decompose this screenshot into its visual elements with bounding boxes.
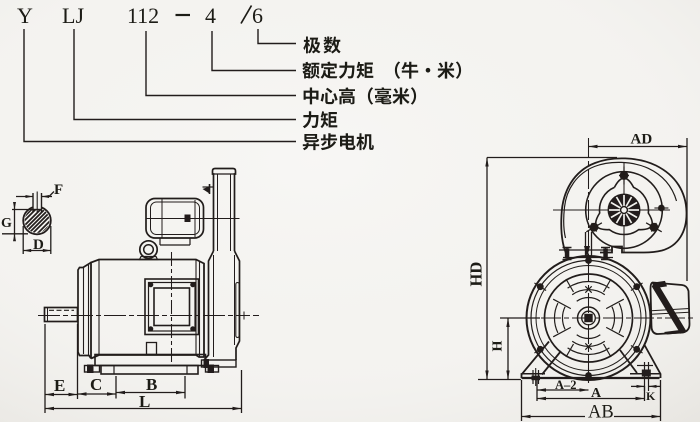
svg-text:F: F — [54, 182, 63, 198]
svg-text:112: 112 — [127, 3, 159, 28]
svg-text:K: K — [646, 389, 656, 403]
svg-text:H: H — [491, 341, 506, 352]
svg-text:L: L — [139, 392, 150, 411]
svg-text:LJ: LJ — [62, 3, 84, 28]
svg-text:Y: Y — [17, 3, 33, 28]
svg-text:A: A — [591, 386, 602, 401]
svg-text:C: C — [90, 375, 102, 394]
svg-text:AB: AB — [588, 403, 614, 422]
svg-text:AD: AD — [631, 132, 653, 148]
svg-text:A–2: A–2 — [555, 378, 577, 392]
svg-text:D: D — [33, 237, 44, 253]
svg-text:6: 6 — [252, 3, 263, 28]
svg-text:E: E — [54, 376, 65, 395]
svg-text:HD: HD — [467, 262, 486, 287]
svg-text:4: 4 — [205, 3, 216, 28]
svg-text:G: G — [1, 216, 12, 231]
